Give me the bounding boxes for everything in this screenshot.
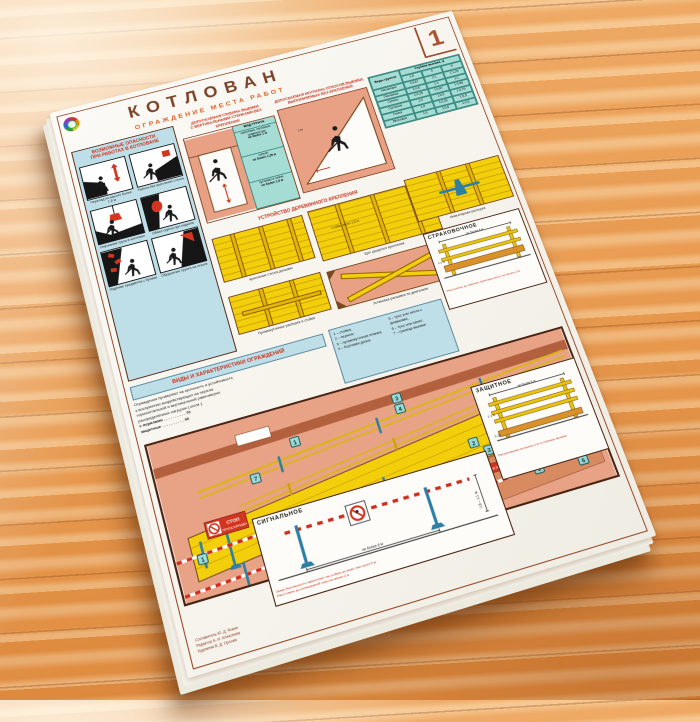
svg-text:1:m: 1:m (297, 127, 303, 132)
hazard-tile: Обрушение грунта на откосе (151, 227, 209, 279)
worker-icon (118, 256, 146, 282)
svg-text:0,8 – 1,1 м: 0,8 – 1,1 м (474, 491, 484, 509)
hazard-tile: Падение предметов с бровки (100, 240, 158, 292)
publisher-logo (62, 115, 81, 133)
svg-text:1,1 м: 1,1 м (437, 260, 445, 266)
hazard-red-accent (160, 148, 171, 158)
spacer-bar (242, 290, 322, 316)
prohibition-sign (345, 501, 370, 526)
svg-text:не более 6 м: не более 6 м (362, 542, 384, 553)
crane-hook-line (112, 206, 115, 214)
hazard-red-accent (110, 163, 121, 183)
poster-board: КОТЛОВАН ОГРАЖДЕНИЕ МЕСТА РАБОТ 1 ВОЗМОЖ… (50, 11, 657, 679)
svg-text:1,1 м: 1,1 м (487, 413, 496, 419)
zashchitnoye-diagram: не более 6 м 1,1 м 0,15 (477, 367, 594, 449)
worker-icon (87, 173, 114, 197)
sheet-number: 1 (414, 20, 457, 58)
strakhovochnoye-diagram: не более 6 м 1,1 м (429, 217, 535, 285)
slope-table: Виды грунтов Глубина выемки, м 1,5 3 5 Н… (367, 54, 478, 129)
worker-icon (156, 201, 184, 226)
